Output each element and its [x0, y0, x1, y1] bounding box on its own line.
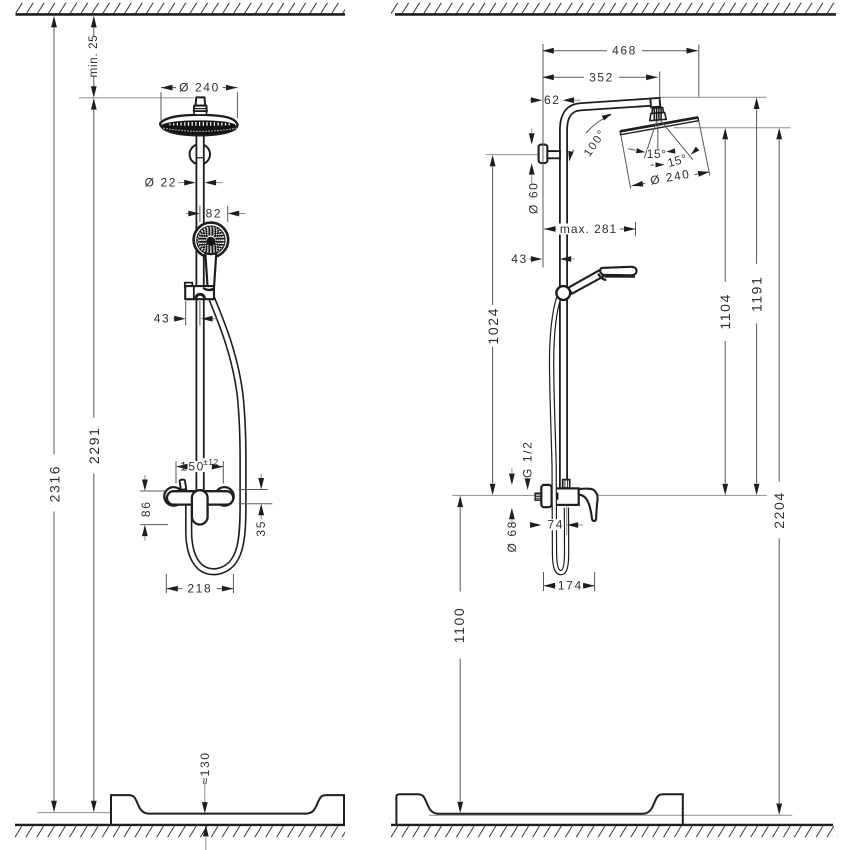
svg-text:174: 174: [558, 579, 583, 593]
svg-text:G 1/2: G 1/2: [521, 441, 535, 478]
svg-text:2204: 2204: [771, 491, 787, 529]
svg-text:2316: 2316: [47, 465, 63, 503]
svg-text:≈130: ≈130: [198, 751, 212, 784]
svg-text:82: 82: [206, 207, 223, 221]
svg-text:150: 150: [180, 460, 205, 474]
svg-text:86: 86: [139, 501, 153, 518]
svg-text:35: 35: [254, 520, 268, 537]
svg-text:2291: 2291: [86, 427, 102, 465]
svg-text:15°: 15°: [647, 147, 667, 161]
svg-text:218: 218: [187, 582, 212, 596]
svg-text:Ø 240: Ø 240: [179, 81, 220, 95]
svg-text:Ø 68: Ø 68: [505, 520, 519, 552]
svg-text:468: 468: [612, 44, 637, 58]
svg-text:max. 281: max. 281: [560, 222, 617, 236]
svg-text:43: 43: [511, 252, 528, 266]
svg-text:Ø 22: Ø 22: [145, 176, 177, 190]
svg-text:43: 43: [154, 312, 171, 326]
svg-text:1191: 1191: [749, 276, 765, 313]
svg-text:min. 25: min. 25: [88, 35, 100, 78]
svg-text:1104: 1104: [717, 293, 733, 330]
svg-text:1024: 1024: [485, 307, 501, 345]
svg-text:1100: 1100: [451, 607, 467, 644]
svg-text:352: 352: [589, 70, 614, 84]
svg-text:74: 74: [548, 518, 565, 532]
svg-text:Ø 60: Ø 60: [527, 182, 541, 214]
svg-text:±12: ±12: [203, 457, 219, 467]
svg-text:62: 62: [544, 93, 561, 107]
